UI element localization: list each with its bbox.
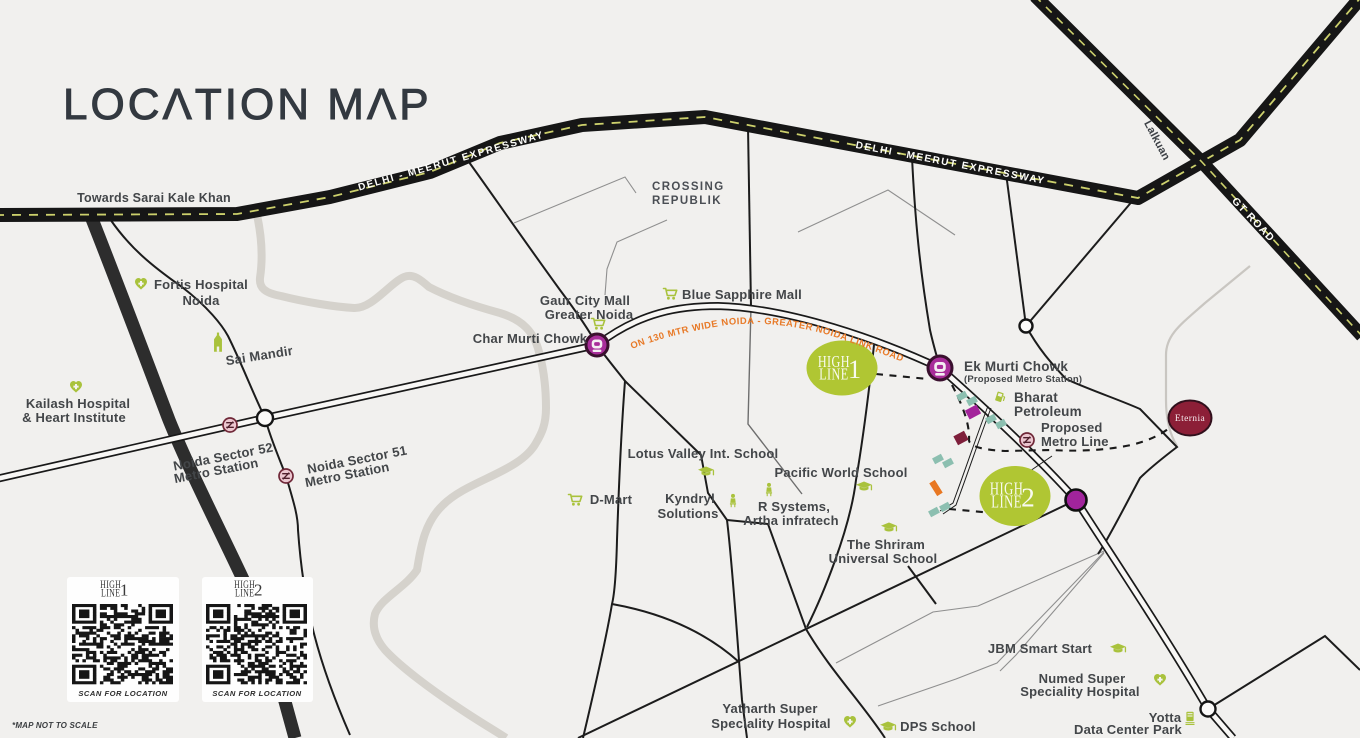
svg-text:DPS School: DPS School	[900, 719, 976, 734]
svg-text:Char Murti Chowk: Char Murti Chowk	[473, 331, 588, 346]
svg-text:Metro Line: Metro Line	[1041, 434, 1109, 449]
svg-text:(Proposed Metro Station): (Proposed Metro Station)	[964, 374, 1082, 385]
svg-text:Speciality Hospital: Speciality Hospital	[711, 716, 830, 731]
svg-text:Artha infratech: Artha infratech	[743, 513, 838, 528]
svg-text:LOCΛTION MΛP: LOCΛTION MΛP	[63, 80, 432, 129]
svg-text:Speciality Hospital: Speciality Hospital	[1020, 684, 1139, 699]
svg-text:Kailash Hospital: Kailash Hospital	[26, 396, 130, 411]
svg-text:Bharat: Bharat	[1014, 390, 1058, 405]
svg-text:2: 2	[1021, 482, 1035, 512]
svg-text:1: 1	[848, 355, 861, 384]
svg-text:CROSSING: CROSSING	[652, 181, 725, 193]
svg-text:Blue Sapphire Mall: Blue Sapphire Mall	[682, 287, 802, 302]
svg-text:Kyndryl: Kyndryl	[665, 491, 715, 506]
svg-text:Greater Noida: Greater Noida	[545, 307, 634, 322]
svg-text:Lotus Valley Int. School: Lotus Valley Int. School	[628, 446, 779, 461]
svg-text:Noida: Noida	[182, 293, 220, 308]
svg-text:2: 2	[254, 581, 263, 600]
svg-text:*MAP NOT TO SCALE: *MAP NOT TO SCALE	[12, 721, 98, 730]
svg-text:Solutions: Solutions	[657, 506, 718, 521]
svg-text:& Heart Institute: & Heart Institute	[22, 410, 126, 425]
svg-text:Proposed: Proposed	[1041, 420, 1103, 435]
svg-text:LINE: LINE	[991, 493, 1022, 513]
svg-text:Data Center Park: Data Center Park	[1074, 722, 1183, 737]
svg-text:Gaur City Mall: Gaur City Mall	[540, 293, 630, 308]
svg-text:Ek Murti Chowk: Ek Murti Chowk	[964, 359, 1068, 374]
svg-text:LINE: LINE	[235, 587, 254, 600]
svg-text:Fortis Hospital: Fortis Hospital	[154, 277, 248, 292]
svg-text:Yatharth Super: Yatharth Super	[722, 701, 817, 716]
svg-text:SCAN FOR LOCATION: SCAN FOR LOCATION	[78, 689, 167, 698]
svg-text:1: 1	[120, 581, 129, 600]
svg-text:JBM Smart Start: JBM Smart Start	[988, 641, 1093, 656]
svg-text:D-Mart: D-Mart	[590, 492, 633, 507]
svg-text:Eternia: Eternia	[1175, 414, 1206, 424]
svg-text:LINE: LINE	[819, 365, 848, 383]
svg-text:Towards Sarai Kale Khan: Towards Sarai Kale Khan	[77, 191, 231, 205]
svg-text:Pacific World School: Pacific World School	[774, 465, 907, 480]
svg-text:Universal School: Universal School	[829, 551, 938, 566]
svg-text:REPUBLIK: REPUBLIK	[652, 195, 722, 207]
svg-text:SCAN FOR LOCATION: SCAN FOR LOCATION	[212, 689, 301, 698]
svg-text:Petroleum: Petroleum	[1014, 404, 1082, 419]
svg-text:The Shriram: The Shriram	[847, 537, 925, 552]
svg-text:R Systems,: R Systems,	[758, 499, 830, 514]
svg-text:LINE: LINE	[101, 587, 120, 600]
